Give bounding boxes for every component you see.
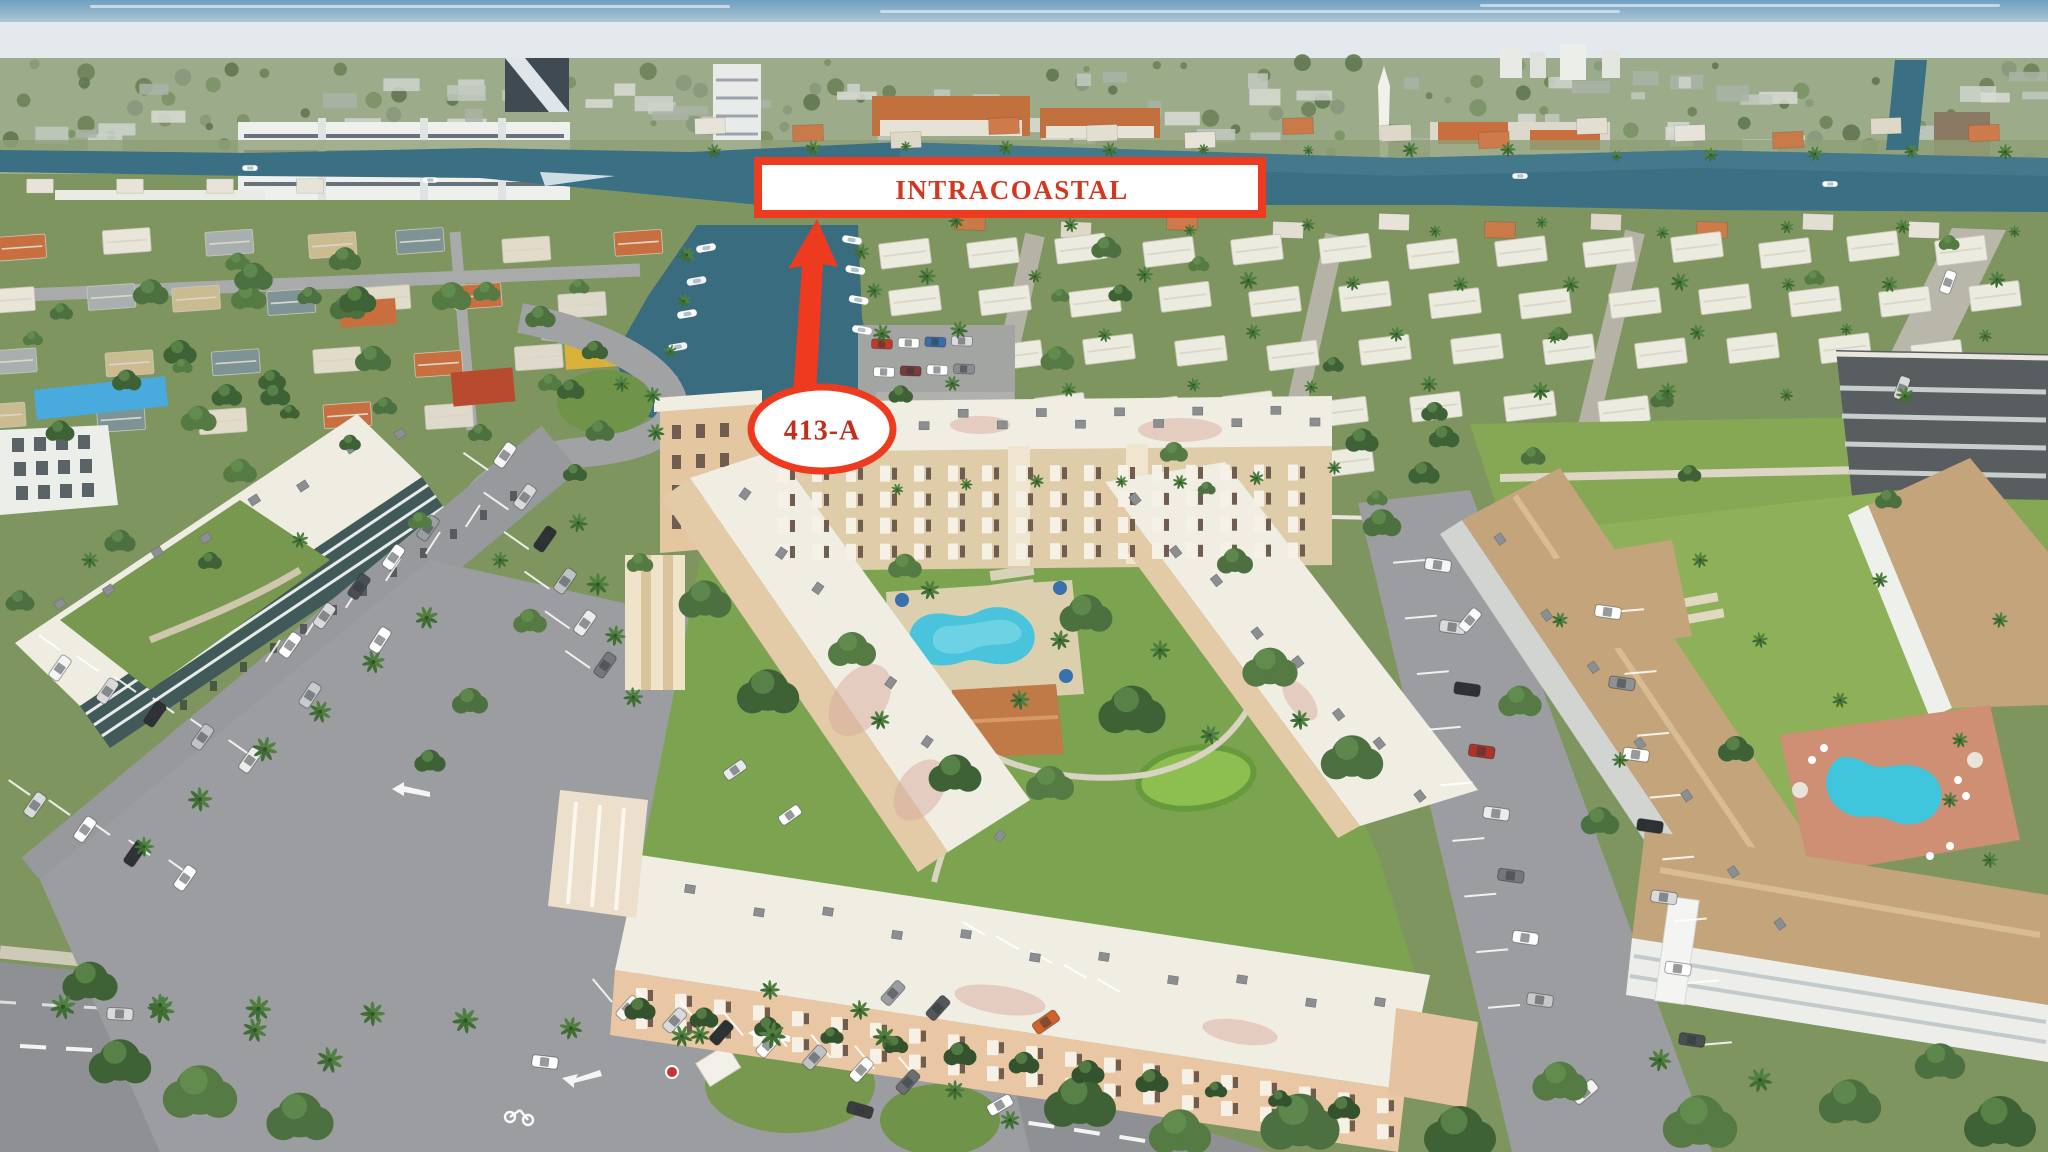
west-stair-tower [625, 555, 685, 690]
aerial-photo: INTRACOASTAL 413-A [0, 0, 2048, 1152]
aerial-scene: INTRACOASTAL 413-A [0, 0, 2048, 1152]
unit-marker-text: 413-A [784, 416, 861, 447]
front-east-tower [1388, 1008, 1478, 1108]
intracoastal-label-text: INTRACOASTAL [895, 175, 1129, 205]
red-roof-house [451, 367, 516, 406]
pool-umbrella [895, 593, 909, 607]
do-not-enter-sign [666, 1066, 678, 1078]
